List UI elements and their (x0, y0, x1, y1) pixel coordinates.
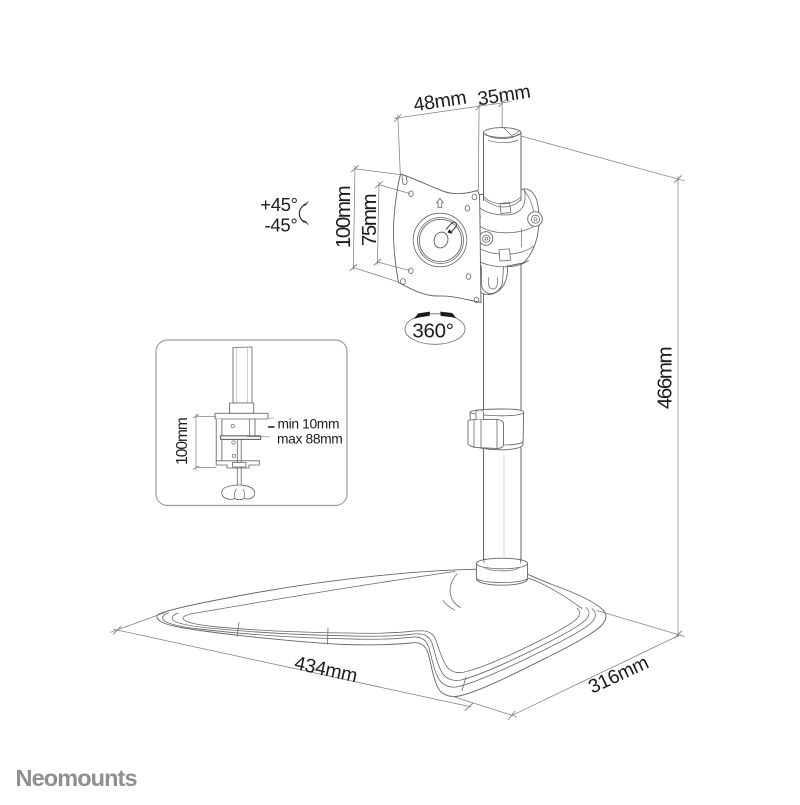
svg-text:75mm: 75mm (358, 195, 381, 247)
svg-text:Neomounts: Neomounts (16, 765, 138, 791)
svg-text:100mm: 100mm (174, 418, 191, 465)
svg-text:35mm: 35mm (476, 81, 532, 111)
svg-text:48mm: 48mm (412, 87, 468, 117)
svg-text:100mm: 100mm (332, 186, 355, 248)
svg-text:+45°: +45° (260, 194, 298, 215)
svg-text:434mm: 434mm (292, 652, 359, 687)
svg-text:max 88mm: max 88mm (277, 432, 342, 447)
svg-text:316mm: 316mm (585, 652, 652, 699)
svg-text:466mm: 466mm (654, 347, 677, 409)
svg-text:360°: 360° (412, 320, 453, 343)
svg-text:min 10mm: min 10mm (278, 417, 340, 432)
svg-text:-45°: -45° (265, 215, 298, 236)
